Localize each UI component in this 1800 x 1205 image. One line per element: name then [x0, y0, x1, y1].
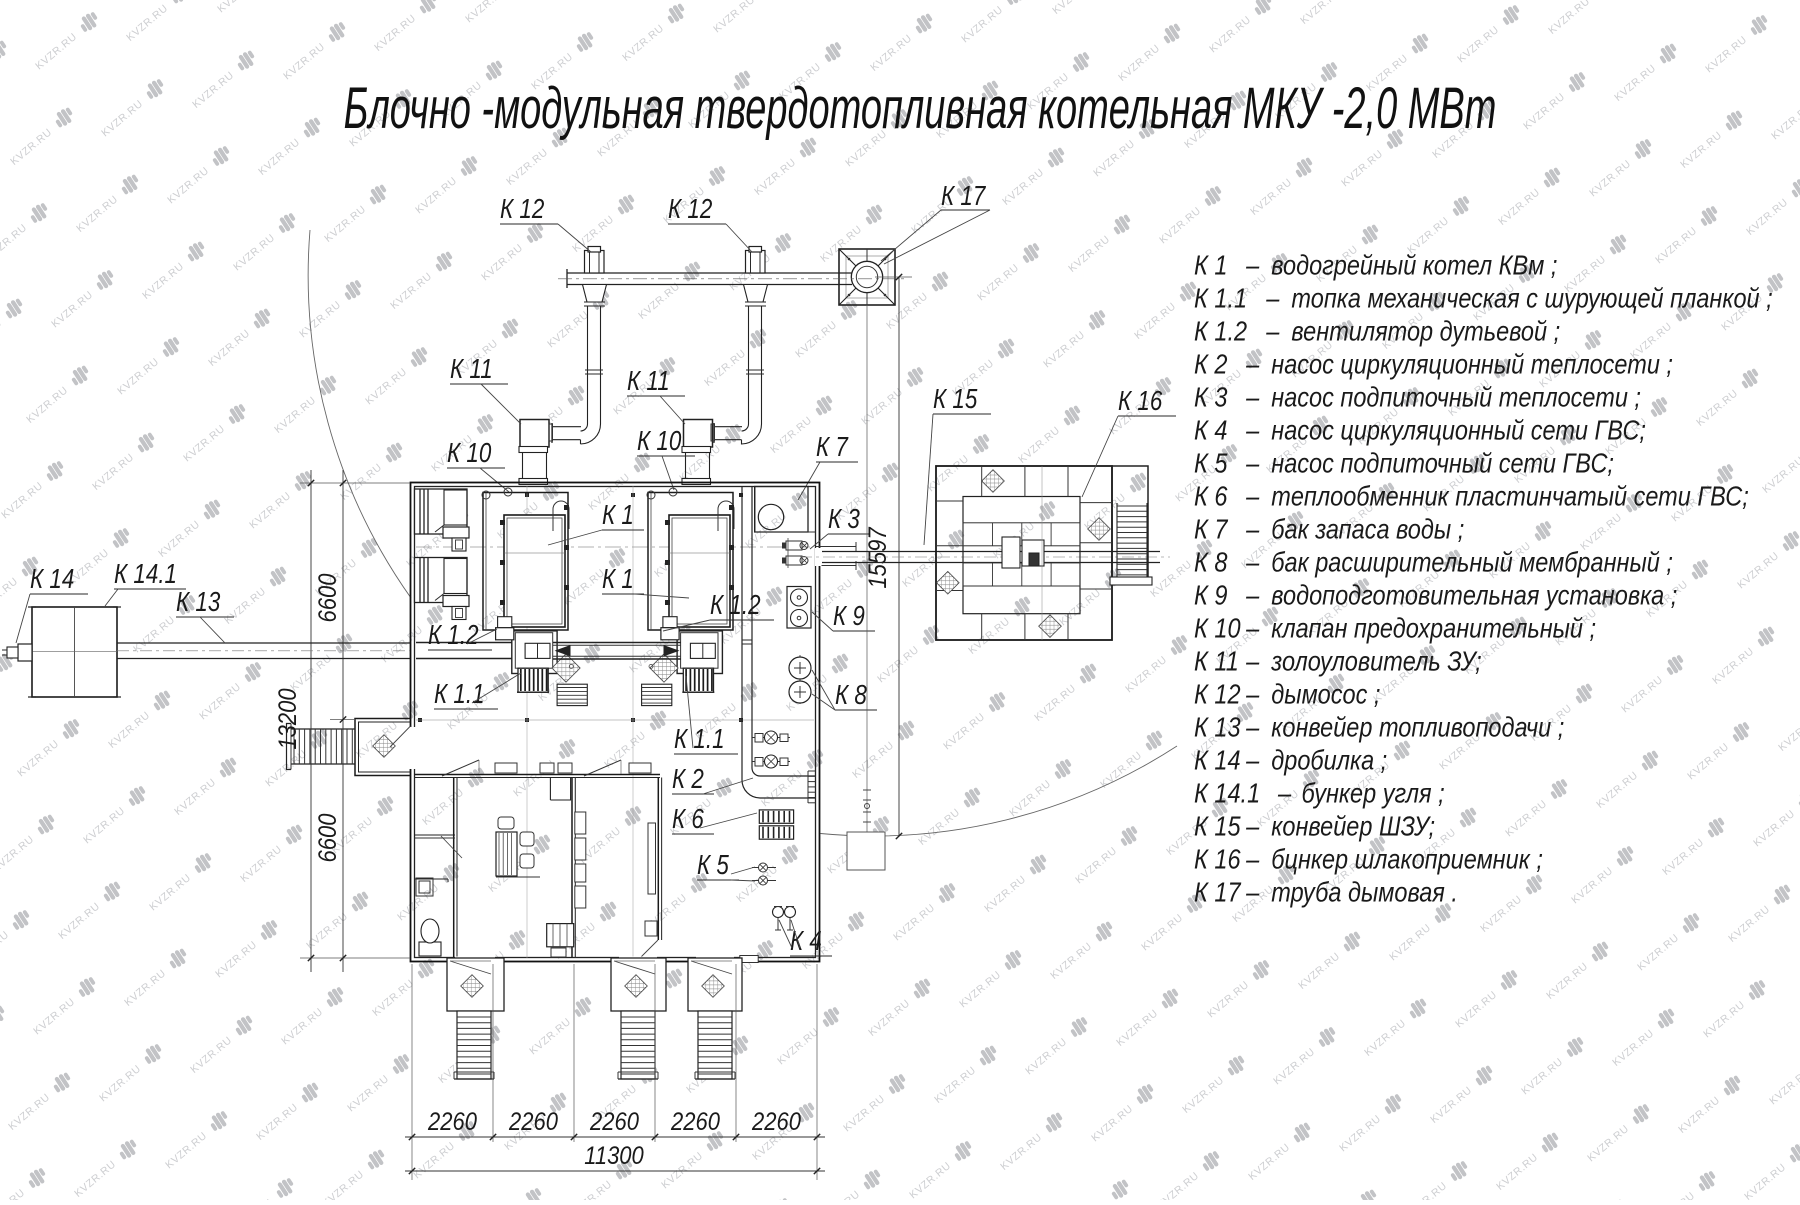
svg-text:15597: 15597 [864, 527, 892, 589]
svg-text:13200: 13200 [274, 688, 302, 749]
svg-text:К 11: К 11 [450, 354, 493, 385]
svg-text:К 11: К 11 [627, 366, 670, 397]
svg-text:К 13: К 13 [176, 587, 220, 618]
svg-text:К 14.1–бункер угля ;: К 14.1–бункер угля ; [1194, 779, 1445, 809]
svg-text:К 14.1: К 14.1 [114, 559, 177, 590]
svg-text:К 12: К 12 [668, 194, 712, 225]
svg-text:К 17–труба дымовая .: К 17–труба дымовая . [1194, 878, 1458, 908]
svg-text:Блочно -модульная твердотоплив: Блочно -модульная твердотопливная котель… [344, 77, 1497, 141]
svg-text:11300: 11300 [584, 1142, 644, 1170]
svg-text:К 12–дымосос ;: К 12–дымосос ; [1194, 680, 1380, 710]
svg-text:К 15–конвейер ШЗУ;: К 15–конвейер ШЗУ; [1194, 812, 1435, 842]
svg-text:6600: 6600 [314, 814, 342, 863]
svg-text:К 6–теплообменник пластинчатый: К 6–теплообменник пластинчатый сети ГВС; [1194, 482, 1749, 512]
svg-text:К 1.1: К 1.1 [434, 679, 485, 710]
svg-text:К 16–бцнкер шлакоприемник ;: К 16–бцнкер шлакоприемник ; [1194, 845, 1543, 875]
svg-text:К 16: К 16 [1118, 386, 1163, 417]
svg-text:2260: 2260 [670, 1108, 720, 1136]
svg-text:К 12: К 12 [500, 194, 544, 225]
svg-text:К 14: К 14 [30, 564, 74, 595]
svg-text:К 13–конвейер топливоподачи ;: К 13–конвейер топливоподачи ; [1194, 713, 1564, 743]
svg-text:2260: 2260 [427, 1108, 477, 1136]
svg-text:2260: 2260 [589, 1108, 639, 1136]
svg-text:К 1.1: К 1.1 [674, 724, 725, 755]
svg-text:К 1.2: К 1.2 [428, 620, 479, 651]
svg-text:К 1: К 1 [602, 500, 634, 531]
svg-text:К 10: К 10 [637, 426, 681, 457]
svg-text:К 7: К 7 [816, 432, 849, 463]
svg-text:К 5: К 5 [697, 850, 730, 881]
svg-text:К 14–дробилка ;: К 14–дробилка ; [1194, 746, 1387, 776]
svg-text:К 8: К 8 [835, 680, 867, 711]
svg-text:К 6: К 6 [672, 804, 705, 835]
svg-text:К 1–водогрейный котел КВм ;: К 1–водогрейный котел КВм ; [1194, 251, 1557, 281]
svg-text:К 1: К 1 [602, 564, 634, 595]
svg-text:2260: 2260 [508, 1108, 558, 1136]
svg-text:К 10–клапан предохранительный: К 10–клапан предохранительный ; [1194, 614, 1596, 644]
svg-text:К 2: К 2 [672, 764, 704, 795]
svg-text:К 11–золоуловитель ЗУ;: К 11–золоуловитель ЗУ; [1194, 647, 1482, 677]
svg-text:К 15: К 15 [933, 384, 978, 415]
svg-text:К 9: К 9 [833, 601, 865, 632]
svg-text:К 5–насос подпиточный сети ГВС: К 5–насос подпиточный сети ГВС; [1194, 449, 1614, 479]
svg-text:6600: 6600 [314, 574, 342, 623]
svg-text:2260: 2260 [751, 1108, 801, 1136]
svg-text:К 10: К 10 [447, 438, 491, 469]
svg-text:К 1.2: К 1.2 [710, 590, 761, 621]
svg-text:К 17: К 17 [941, 181, 986, 212]
svg-text:К 3: К 3 [828, 504, 860, 535]
